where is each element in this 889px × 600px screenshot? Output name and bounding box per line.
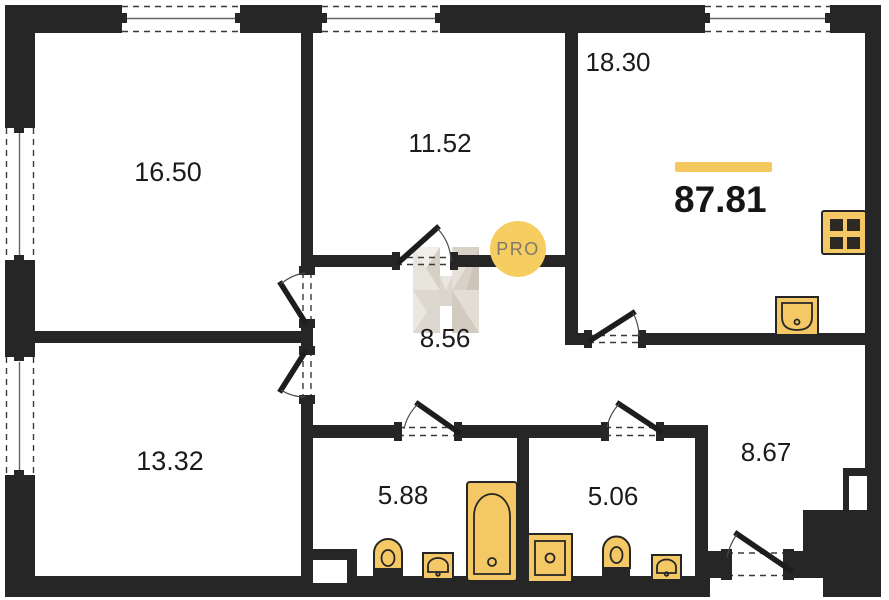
toilet-icon-wc: [602, 537, 630, 582]
stove-icon: [822, 211, 866, 254]
area-label-hallway: 8.56: [420, 323, 471, 353]
area-label-bathroom: 5.88: [378, 480, 429, 510]
sink-icon-bathroom: [423, 553, 453, 583]
washing-machine-icon: [528, 534, 572, 582]
floor-plan: PRO 16.50 11.52 18.30 8.56 13.32 5.88 5.…: [0, 0, 889, 600]
area-label-bedroom-bottom-left: 13.32: [136, 446, 204, 476]
total-area-label: 87.81: [674, 179, 767, 220]
area-label-entry-hall: 8.67: [741, 437, 792, 467]
total-area-accent-bar: [675, 162, 772, 172]
sink-icon-wc: [652, 555, 681, 583]
pro-badge: PRO: [490, 221, 546, 277]
area-label-living-kitchen: 18.30: [585, 47, 650, 77]
entry-niche: [849, 476, 867, 510]
kitchen-sink-icon: [776, 297, 818, 335]
bathtub-icon: [467, 482, 517, 581]
area-label-wc: 5.06: [588, 481, 639, 511]
area-label-bedroom-top-left: 16.50: [134, 157, 202, 187]
total-area-block: 87.81: [674, 162, 772, 220]
toilet-icon-bathroom: [373, 539, 403, 581]
pro-badge-label: PRO: [496, 239, 540, 259]
area-label-bedroom-top-middle: 11.52: [408, 128, 471, 158]
